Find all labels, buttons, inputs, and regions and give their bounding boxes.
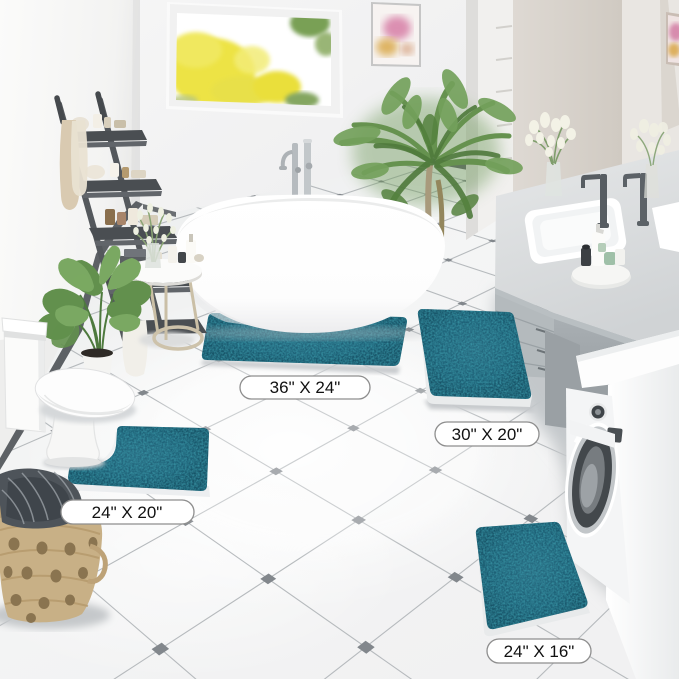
svg-text:24" X 16": 24" X 16" <box>504 642 575 661</box>
svg-text:24" X 20": 24" X 20" <box>92 503 163 522</box>
svg-text:36" X 24": 36" X 24" <box>270 378 341 397</box>
svg-text:30" X 20": 30" X 20" <box>452 425 523 444</box>
